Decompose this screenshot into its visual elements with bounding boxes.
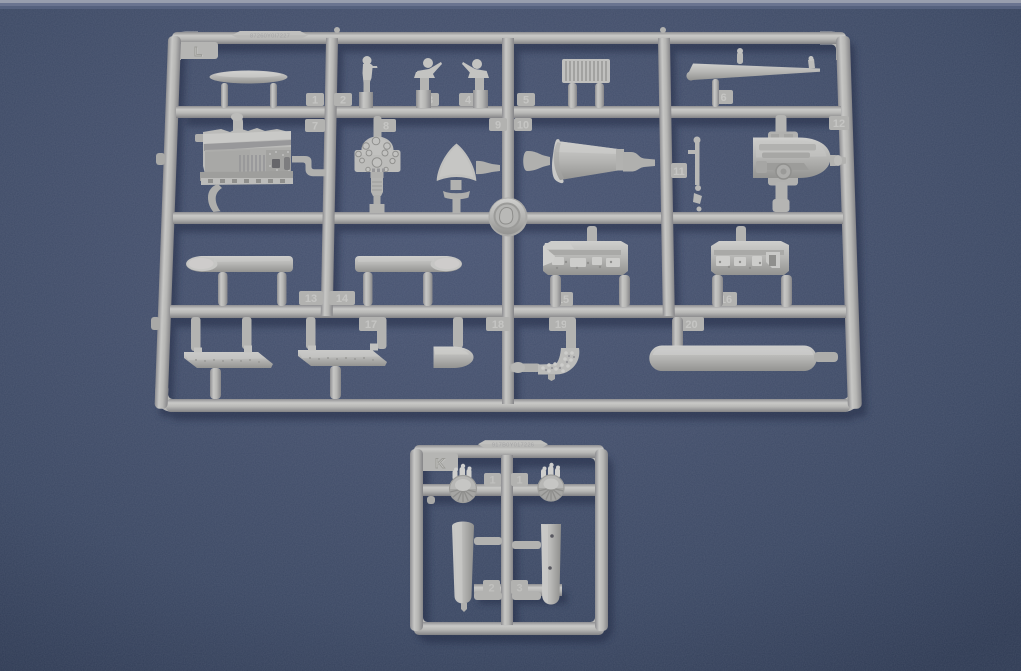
- svg-text:18: 18: [492, 319, 504, 331]
- svg-text:12: 12: [833, 118, 845, 130]
- svg-text:14: 14: [336, 293, 349, 305]
- svg-text:10: 10: [517, 120, 529, 132]
- svg-text:4: 4: [465, 95, 472, 107]
- svg-text:8: 8: [383, 121, 389, 133]
- svg-text:1: 1: [489, 475, 495, 487]
- svg-text:L: L: [194, 44, 202, 59]
- svg-text:1: 1: [312, 95, 318, 107]
- svg-text:5: 5: [523, 95, 529, 107]
- svg-text:17: 17: [365, 319, 377, 331]
- svg-text:917B0Y017226: 917B0Y017226: [492, 443, 534, 449]
- svg-text:1: 1: [516, 475, 522, 487]
- svg-text:7: 7: [312, 121, 318, 133]
- svg-text:13: 13: [305, 293, 317, 305]
- svg-text:2: 2: [340, 95, 346, 107]
- svg-text:6: 6: [720, 92, 726, 104]
- svg-text:20: 20: [685, 319, 697, 331]
- svg-text:19: 19: [555, 319, 567, 331]
- svg-text:11: 11: [673, 166, 685, 178]
- svg-text:K: K: [435, 455, 445, 471]
- svg-text:87260Y0I7227: 87260Y0I7227: [250, 34, 290, 40]
- svg-text:9: 9: [495, 120, 501, 132]
